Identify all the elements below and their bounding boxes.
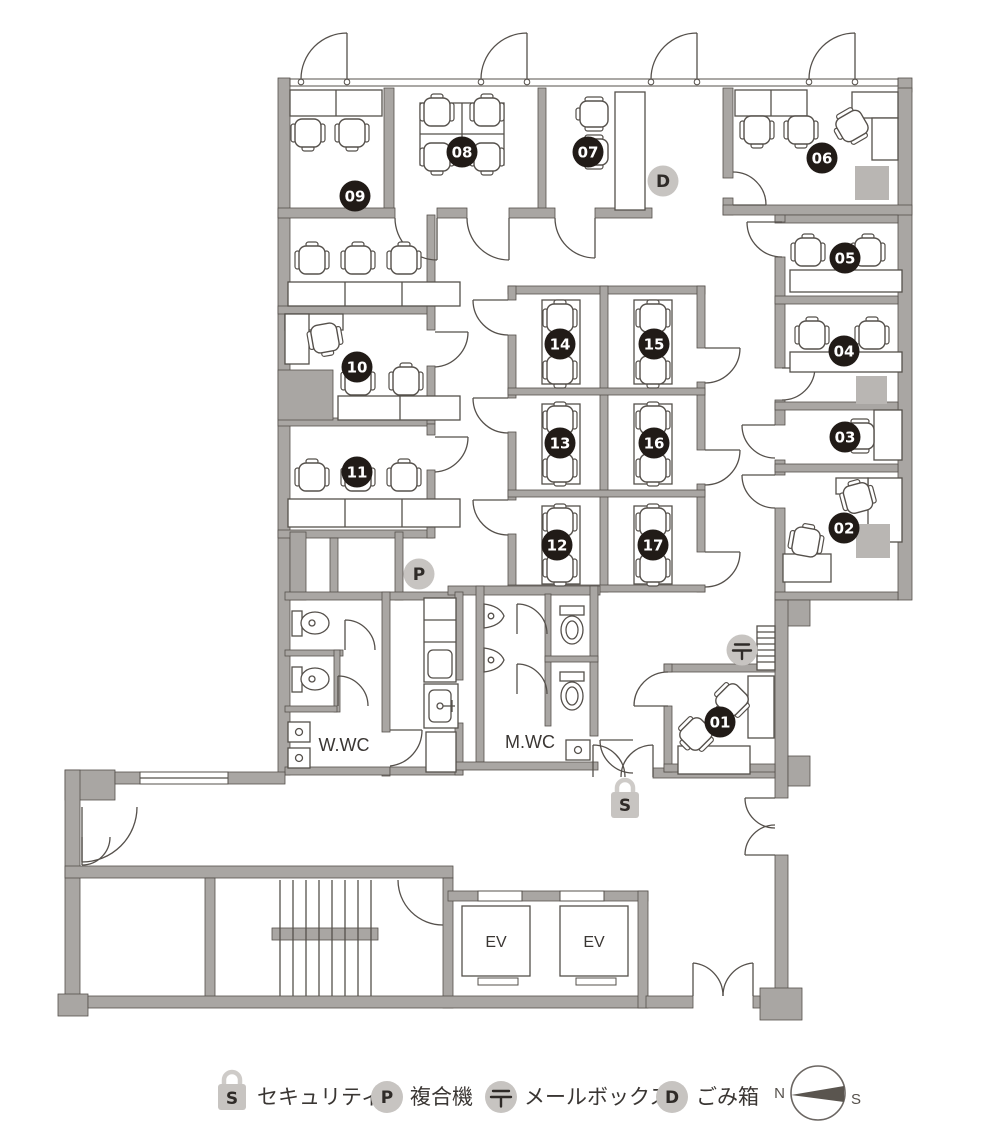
svg-text:12: 12: [547, 536, 568, 554]
svg-text:P: P: [381, 1088, 393, 1108]
toilet-icon: [292, 611, 329, 636]
urinal-icon: [484, 604, 504, 628]
svg-text:03: 03: [835, 428, 856, 446]
svg-text:S: S: [619, 796, 631, 816]
toilet-icon: [560, 606, 584, 644]
svg-text:08: 08: [452, 143, 473, 161]
room-badge-10: 10: [342, 352, 373, 383]
elevators: EV EV: [462, 906, 628, 985]
legend-trash: D ごみ箱: [656, 1081, 759, 1113]
svg-text:S: S: [226, 1089, 238, 1109]
legend: S セキュリティ P 複合機 メールボックス D ごみ箱: [218, 1072, 759, 1113]
postal-mark-icon: [485, 1081, 517, 1113]
room-badge-11: 11: [342, 457, 373, 488]
compass-south-label: S: [851, 1091, 861, 1108]
room-badge-06: 06: [807, 143, 838, 174]
svg-text:10: 10: [347, 358, 368, 376]
room-badge-13: 13: [545, 428, 576, 459]
room-badge-07: 07: [573, 137, 604, 168]
svg-text:13: 13: [550, 434, 571, 452]
kitchen-sink-icon: [424, 684, 458, 728]
compass-north-label: N: [774, 1085, 785, 1102]
svg-text:01: 01: [710, 713, 731, 731]
svg-text:04: 04: [834, 342, 855, 360]
printer-badge: P: [404, 559, 435, 590]
svg-text:05: 05: [835, 249, 856, 267]
legend-security: S セキュリティ: [218, 1072, 382, 1110]
svg-text:P: P: [413, 565, 425, 585]
room-badge-16: 16: [639, 428, 670, 459]
elevator-label-2: EV: [583, 934, 605, 951]
sink-icon: [566, 740, 590, 760]
compass: N S: [774, 1066, 861, 1120]
svg-text:16: 16: [644, 434, 665, 452]
urinal-icon: [484, 648, 504, 672]
svg-text:09: 09: [345, 187, 366, 205]
svg-text:02: 02: [834, 519, 855, 537]
womens-wc-label: W.WC: [319, 735, 370, 755]
legend-printer: P 複合機: [371, 1081, 473, 1113]
room-badge-15: 15: [639, 329, 670, 360]
mens-wc-label: M.WC: [505, 732, 555, 752]
svg-text:17: 17: [643, 536, 664, 554]
mailbox-badge: [727, 635, 758, 666]
room-badge-02: 02: [829, 513, 860, 544]
toilet-icon: [560, 672, 584, 710]
svg-text:セキュリティ: セキュリティ: [257, 1085, 382, 1109]
legend-mailbox: メールボックス: [485, 1081, 670, 1113]
mailbox-slots: [757, 626, 775, 670]
room-badge-08: 08: [447, 137, 478, 168]
room-badge-12: 12: [542, 530, 573, 561]
room-badge-17: 17: [638, 530, 669, 561]
floor-plan: EV EV: [0, 0, 1000, 1143]
room-badge-03: 03: [830, 422, 861, 453]
sink-icon: [288, 722, 310, 742]
svg-text:メールボックス: メールボックス: [524, 1085, 670, 1109]
room-badge-01: 01: [705, 707, 736, 738]
svg-text:複合機: 複合機: [410, 1085, 473, 1109]
svg-text:D: D: [665, 1088, 679, 1108]
svg-text:ごみ箱: ごみ箱: [696, 1085, 759, 1109]
svg-text:06: 06: [812, 149, 833, 167]
svg-text:11: 11: [347, 463, 368, 481]
printer-circle-icon: P: [371, 1081, 403, 1113]
toilet-icon: [292, 667, 329, 692]
sink-icon: [288, 748, 310, 768]
security-badge: S: [611, 780, 639, 818]
room-badge-04: 04: [829, 336, 860, 367]
trash-circle-icon: D: [656, 1081, 688, 1113]
elevator-label-1: EV: [485, 934, 507, 951]
walls: [58, 78, 912, 1020]
svg-text:D: D: [656, 172, 670, 192]
doors: [82, 33, 855, 996]
trash-badge: D: [648, 166, 679, 197]
security-lock-icon: S: [218, 1072, 246, 1110]
svg-text:14: 14: [550, 335, 571, 353]
room-badge-14: 14: [545, 329, 576, 360]
svg-text:15: 15: [644, 335, 665, 353]
svg-text:07: 07: [578, 143, 599, 161]
room-badge-05: 05: [830, 243, 861, 274]
room-badge-09: 09: [340, 181, 371, 212]
